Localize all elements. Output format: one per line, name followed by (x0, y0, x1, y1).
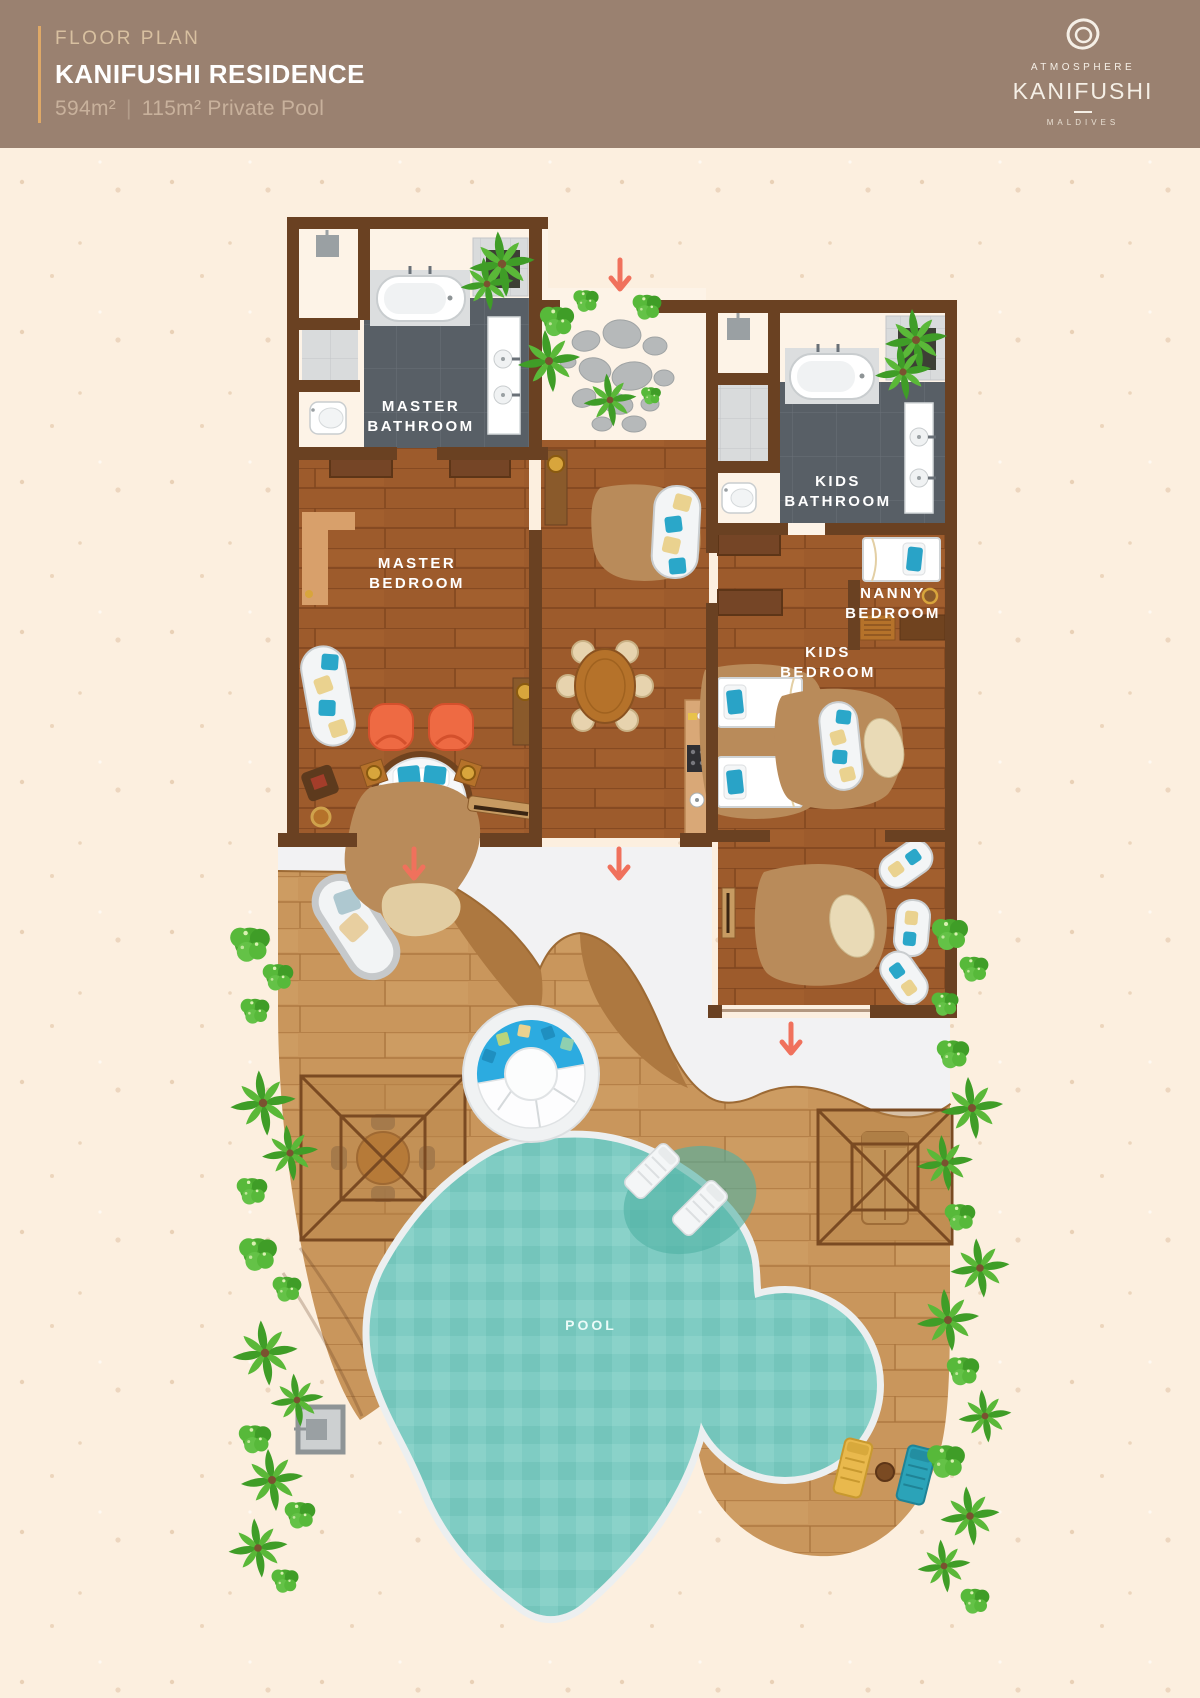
nanny-bedroom-label: BEDROOM (845, 605, 941, 622)
kids-bedroom-label: KIDS (805, 644, 851, 661)
toilet (722, 483, 756, 513)
armchair-orange (429, 704, 473, 750)
curved-seat (893, 899, 932, 958)
shower-head-icon (727, 318, 750, 340)
brand-logo: ATMOSPHERE KANIFUSHI MALDIVES (1000, 12, 1166, 127)
bathtub (785, 344, 879, 404)
logo-brand-text: ATMOSPHERE (1000, 62, 1166, 73)
floor-plan-page: FLOOR PLAN KANIFUSHI RESIDENCE 594m²|115… (0, 0, 1200, 1698)
double-vanity (488, 317, 520, 434)
vanity (905, 403, 936, 513)
kids-bedroom-label: BEDROOM (780, 664, 876, 681)
lounge-pavilion (818, 1110, 952, 1244)
nanny-bedroom-label: NANNY (860, 585, 926, 602)
jacuzzi-lounge (463, 1006, 599, 1142)
desk (718, 590, 782, 615)
kids-bathroom-label: KIDS (815, 473, 861, 490)
residence-title: KANIFUSHI RESIDENCE (55, 59, 365, 90)
atmosphere-spiral-icon (1061, 12, 1105, 56)
accent-bar (38, 26, 41, 123)
sink-icon (690, 793, 704, 807)
master-bathroom-label: BATHROOM (367, 418, 474, 435)
pool-label: POOL (565, 1317, 617, 1333)
pool-size: 115m² Private Pool (142, 97, 324, 120)
dining-set (557, 641, 653, 731)
side-table (876, 1463, 894, 1481)
single-bed (863, 538, 940, 581)
armchair-orange (369, 704, 413, 750)
size-divider: | (126, 97, 132, 120)
master-bedroom-label: MASTER (378, 555, 456, 572)
area-info: 594m²|115m² Private Pool (55, 97, 365, 121)
plan-type-label: FLOOR PLAN (55, 28, 365, 50)
kids-bathroom-label: BATHROOM (784, 493, 891, 510)
residence-size: 594m² (55, 97, 116, 120)
logo-underline (1074, 111, 1092, 113)
header-text-block: FLOOR PLAN KANIFUSHI RESIDENCE 594m²|115… (38, 26, 365, 123)
master-bathroom-label: MASTER (382, 398, 460, 415)
toilet (310, 402, 346, 434)
logo-country-text: MALDIVES (1000, 118, 1166, 127)
bathtub (370, 266, 470, 326)
console-with-lamp (545, 450, 567, 525)
floor-plan: POOL (0, 148, 1200, 1698)
header: FLOOR PLAN KANIFUSHI RESIDENCE 594m²|115… (0, 0, 1200, 148)
living-sofa (651, 485, 702, 579)
logo-resort-text: KANIFUSHI (1000, 78, 1166, 105)
master-bedroom-label: BEDROOM (369, 575, 465, 592)
desk (718, 533, 780, 555)
shower-head-icon (316, 235, 339, 257)
